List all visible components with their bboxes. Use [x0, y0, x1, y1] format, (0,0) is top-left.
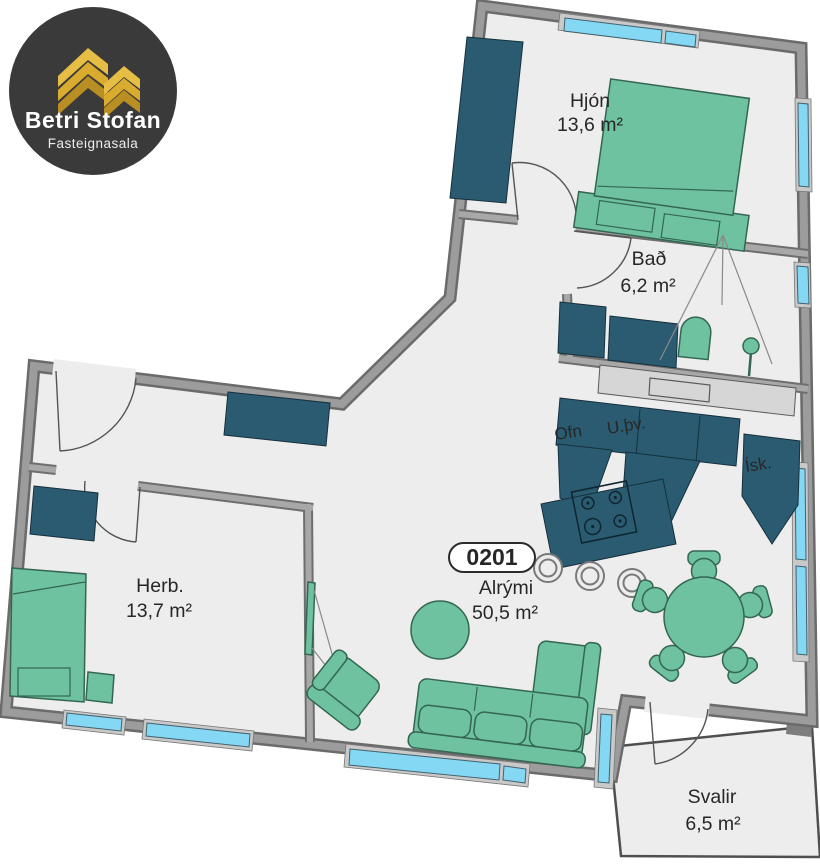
- room-alrymi-name: Alrými: [479, 577, 533, 599]
- room-hjon-area: 13,6 m²: [557, 114, 624, 136]
- room-herb-area: 13,7 m²: [126, 600, 193, 622]
- logo-brand-text: Betri Stofan: [25, 107, 161, 133]
- window-right-2: [794, 262, 811, 308]
- room-wardrobe: [30, 486, 98, 541]
- floor-plan-svg: Hjón 13,6 m² Bað 6,2 m² Alrými 50,5 m² H…: [0, 0, 820, 867]
- room-bad-area: 6,2 m²: [620, 275, 676, 297]
- dryer: [608, 316, 678, 368]
- room-alrymi-area: 50,5 m²: [472, 602, 539, 624]
- single-bed: [10, 568, 86, 702]
- room-bad-name: Bað: [632, 248, 667, 270]
- room-hjon-name: Hjón: [570, 90, 610, 112]
- logo-tagline-text: Fasteignasala: [48, 136, 139, 151]
- dining-table: [664, 577, 744, 657]
- window-step: [594, 708, 617, 789]
- room-herb-name: Herb.: [136, 575, 184, 597]
- agency-logo: Betri Stofan Fasteignasala: [9, 7, 177, 175]
- window-right-1: [795, 98, 812, 192]
- room-svalir-area: 6,5 m²: [685, 813, 741, 835]
- room-svalir-name: Svalir: [688, 786, 737, 808]
- unit-badge: 0201: [449, 543, 535, 572]
- coffee-table: [411, 601, 469, 659]
- washing-machine: [558, 302, 606, 358]
- nightstand: [86, 672, 114, 703]
- unit-number: 0201: [466, 544, 517, 570]
- floor-plan-page: Hjón 13,6 m² Bað 6,2 m² Alrými 50,5 m² H…: [0, 0, 820, 867]
